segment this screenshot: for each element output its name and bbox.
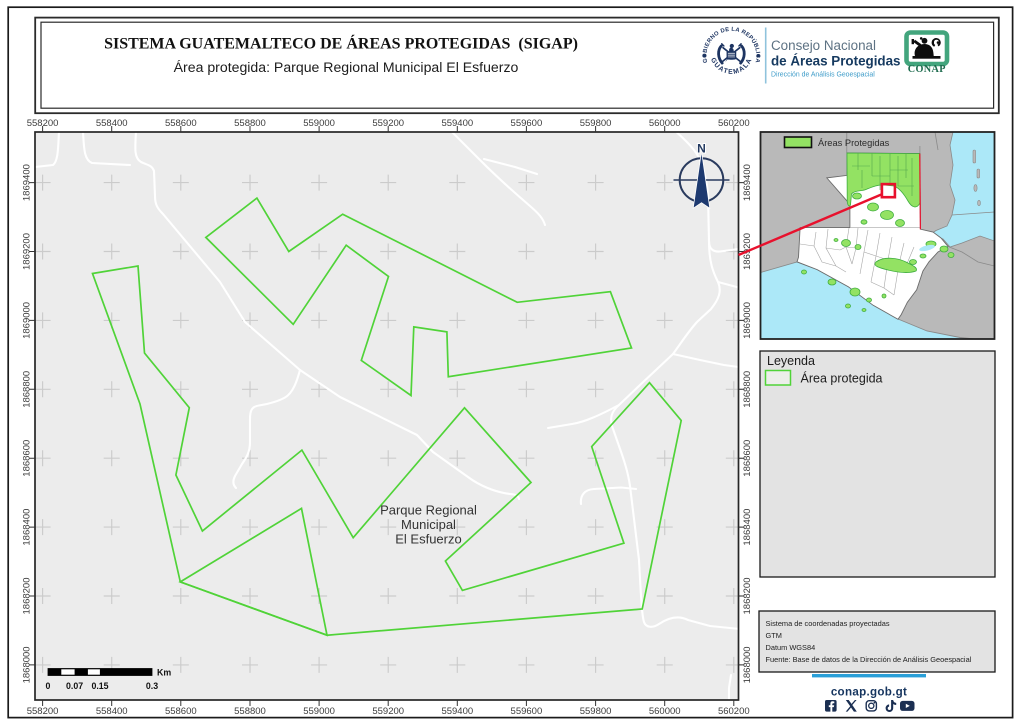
svg-text:1868800: 1868800 xyxy=(22,371,33,408)
svg-text:560200: 560200 xyxy=(718,706,750,717)
svg-text:558400: 558400 xyxy=(96,706,128,717)
svg-text:558600: 558600 xyxy=(165,706,197,717)
svg-text:558800: 558800 xyxy=(234,118,266,129)
svg-text:559000: 559000 xyxy=(303,118,335,129)
svg-text:Leyenda: Leyenda xyxy=(767,354,815,368)
svg-text:Datum WGS84: Datum WGS84 xyxy=(766,643,816,652)
svg-text:559000: 559000 xyxy=(303,706,335,717)
svg-text:Sistema de coordenadas proyect: Sistema de coordenadas proyectadas xyxy=(766,619,890,628)
svg-text:1869000: 1869000 xyxy=(742,302,753,339)
svg-text:559600: 559600 xyxy=(511,706,543,717)
svg-text:1869200: 1869200 xyxy=(22,233,33,270)
svg-text:1868000: 1868000 xyxy=(742,646,753,683)
svg-text:560000: 560000 xyxy=(649,118,681,129)
svg-text:1869400: 1869400 xyxy=(22,164,33,201)
svg-text:Consejo Nacional: Consejo Nacional xyxy=(771,38,876,53)
svg-text:1869000: 1869000 xyxy=(22,302,33,339)
svg-text:1868600: 1868600 xyxy=(742,440,753,477)
svg-text:CONAP: CONAP xyxy=(908,64,946,75)
svg-text:560000: 560000 xyxy=(649,706,681,717)
svg-text:559200: 559200 xyxy=(372,118,404,129)
svg-text:Fuente: Base de datos de la Di: Fuente: Base de datos de la Dirección de… xyxy=(766,655,972,664)
svg-text:1868200: 1868200 xyxy=(22,578,33,615)
svg-text:558200: 558200 xyxy=(27,118,59,129)
svg-text:558400: 558400 xyxy=(96,118,128,129)
svg-text:El Esfuerzo: El Esfuerzo xyxy=(395,532,461,547)
svg-text:559200: 559200 xyxy=(372,706,404,717)
svg-text:Parque Regional: Parque Regional xyxy=(380,503,477,518)
svg-text:558800: 558800 xyxy=(234,706,266,717)
svg-text:0.3: 0.3 xyxy=(146,681,158,691)
svg-text:1868000: 1868000 xyxy=(22,646,33,683)
svg-text:559400: 559400 xyxy=(441,706,473,717)
svg-text:0.07: 0.07 xyxy=(66,681,83,691)
svg-text:1868800: 1868800 xyxy=(742,371,753,408)
svg-text:N: N xyxy=(697,142,706,156)
svg-text:GTM: GTM xyxy=(766,631,782,640)
svg-text:560200: 560200 xyxy=(718,118,750,129)
svg-text:1868400: 1868400 xyxy=(22,509,33,546)
svg-text:558200: 558200 xyxy=(27,706,59,717)
svg-text:1868200: 1868200 xyxy=(742,578,753,615)
svg-text:0: 0 xyxy=(46,681,51,691)
svg-text:558600: 558600 xyxy=(165,118,197,129)
svg-text:conap.gob.gt: conap.gob.gt xyxy=(831,686,907,699)
svg-text:de Áreas Protegidas: de Áreas Protegidas xyxy=(771,54,901,69)
svg-text:1869400: 1869400 xyxy=(742,164,753,201)
svg-text:Municipal: Municipal xyxy=(401,517,456,532)
svg-text:Área protegida: Parque Regiona: Área protegida: Parque Regional Municipa… xyxy=(174,59,519,75)
svg-text:0.15: 0.15 xyxy=(91,681,108,691)
svg-text:559600: 559600 xyxy=(511,118,543,129)
svg-text:SISTEMA GUATEMALTECO DE ÁREAS: SISTEMA GUATEMALTECO DE ÁREAS PROTEGIDAS… xyxy=(104,34,578,53)
svg-text:Área protegida: Área protegida xyxy=(801,371,883,386)
svg-text:1868600: 1868600 xyxy=(22,440,33,477)
svg-text:559400: 559400 xyxy=(441,118,473,129)
svg-text:1868400: 1868400 xyxy=(742,509,753,546)
svg-text:559800: 559800 xyxy=(580,118,612,129)
svg-text:559800: 559800 xyxy=(580,706,612,717)
svg-text:Áreas Protegidas: Áreas Protegidas xyxy=(818,138,890,148)
svg-text:Dirección de Análisis Geoespac: Dirección de Análisis Geoespacial xyxy=(771,72,875,79)
svg-text:Km: Km xyxy=(157,668,171,678)
